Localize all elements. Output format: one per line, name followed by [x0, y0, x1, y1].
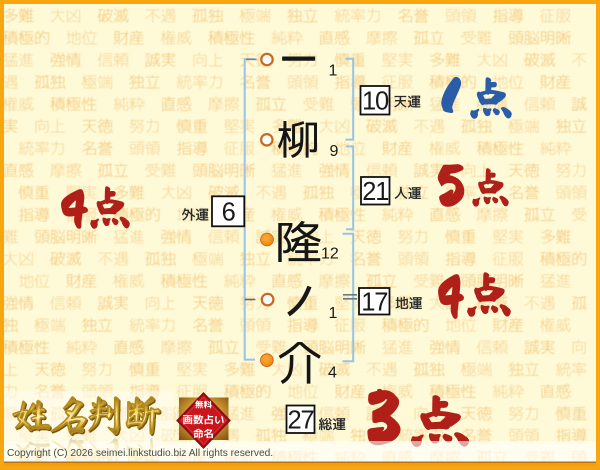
svg-text:12: 12: [321, 246, 339, 263]
svg-text:4: 4: [328, 365, 337, 382]
svg-text:27: 27: [288, 406, 314, 434]
svg-text:10: 10: [362, 87, 389, 115]
svg-text:21: 21: [362, 178, 388, 206]
svg-text:1: 1: [329, 63, 338, 80]
svg-text:17: 17: [361, 288, 387, 316]
svg-text:9: 9: [330, 143, 339, 160]
svg-text:1: 1: [329, 305, 338, 322]
svg-text:Copyright (C) 2026 seimei.link: Copyright (C) 2026 seimei.linkstudio.biz…: [7, 448, 273, 459]
svg-text:6: 6: [222, 198, 236, 226]
